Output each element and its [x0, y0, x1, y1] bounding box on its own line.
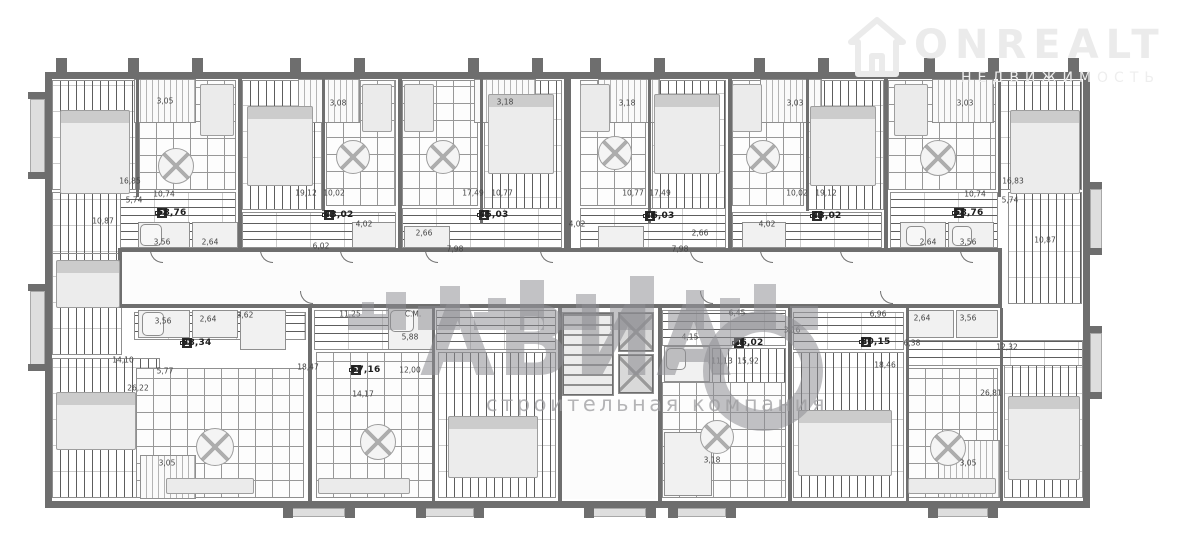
table-furniture — [360, 424, 396, 460]
wall — [28, 92, 45, 99]
wall — [290, 58, 301, 74]
dimension-label: 6,02 — [313, 242, 330, 251]
dimension-label: 2,64 — [920, 238, 937, 247]
dimension-label: 10,74 — [153, 190, 174, 199]
apartment-area: 43,02 — [812, 211, 841, 221]
wall — [646, 506, 656, 518]
wall — [988, 506, 998, 518]
dimension-label: 5,74 — [1002, 196, 1019, 205]
counter-furniture — [318, 478, 410, 494]
dimension-label: 26,81 — [980, 389, 1001, 398]
table-furniture — [746, 140, 780, 174]
dimension-label: 10,77 — [491, 189, 512, 198]
wall — [474, 506, 484, 518]
wall — [56, 58, 67, 74]
apartment-badge: 143,02 — [810, 214, 816, 218]
onrealt-tagline-text: НЕДВИЖИМОСТЬ — [961, 70, 1160, 86]
onrealt-brand-text: ONREALT — [914, 22, 1166, 68]
wall — [788, 308, 792, 501]
room-slab — [418, 508, 474, 517]
counter-furniture — [166, 478, 254, 494]
wall — [28, 172, 45, 179]
dimension-label: 14,17 — [352, 390, 373, 399]
dimension-label: 3,56 — [154, 238, 171, 247]
dimension-label: 10,74 — [964, 190, 985, 199]
dimension-label: 2,66 — [416, 229, 433, 238]
table-furniture — [158, 148, 194, 184]
wall — [432, 308, 435, 501]
counter-furniture — [908, 478, 996, 494]
wall — [398, 79, 402, 249]
dimension-label: 19,12 — [295, 189, 316, 198]
dimension-label: 3,56 — [960, 314, 977, 323]
dimension-label: 16,85 — [119, 177, 140, 186]
room-slab — [30, 291, 45, 365]
wall — [354, 58, 365, 74]
dimension-label: 10,02 — [786, 189, 807, 198]
wall — [28, 364, 45, 371]
dimension-label: 16,83 — [1002, 177, 1023, 186]
dimension-label: 10,77 — [622, 189, 643, 198]
table-furniture — [336, 140, 370, 174]
wall — [1090, 248, 1102, 255]
room-slab — [930, 508, 988, 517]
apartment-area: 58,76 — [157, 208, 186, 218]
room-slab — [1090, 189, 1102, 249]
apartment-badge: 288,34 — [180, 341, 186, 345]
dimension-label: 3,56 — [155, 317, 172, 326]
bed-furniture — [56, 392, 136, 450]
dimension-label: 4,02 — [569, 220, 586, 229]
dimension-label: 3,18 — [704, 456, 721, 465]
table-furniture — [700, 420, 734, 454]
wall — [532, 58, 543, 74]
wall — [468, 58, 479, 74]
apartment-area: 58,76 — [954, 208, 983, 218]
dimension-label: 3,18 — [619, 99, 636, 108]
dimension-label: 14,10 — [112, 356, 133, 365]
bed-furniture — [448, 416, 538, 478]
dimension-label: 5,77 — [157, 367, 174, 376]
wall — [308, 308, 312, 501]
dimension-label: 11,13 — [711, 357, 732, 366]
wall — [118, 248, 1002, 252]
dimension-label: 15,92 — [737, 357, 758, 366]
apartment-area: 80,15 — [861, 337, 890, 347]
bed-furniture — [654, 94, 720, 174]
wall — [754, 58, 765, 74]
table-furniture — [426, 140, 460, 174]
wall — [45, 72, 52, 508]
wall — [1090, 326, 1102, 333]
room-stair — [562, 312, 614, 396]
floorplan-canvas: ONREALT НЕДВИЖИМОСТЬ 3,0516,8510,745,741… — [0, 0, 1200, 558]
counter-furniture — [362, 84, 392, 132]
wall — [584, 506, 594, 518]
dimension-label: 2,66 — [692, 229, 709, 238]
room-plain — [120, 252, 1000, 304]
wall — [238, 79, 242, 249]
apartment-area: 67,16 — [351, 365, 380, 375]
dimension-label: 6,38 — [904, 339, 921, 348]
wall — [906, 308, 909, 501]
apartment-area: 45,03 — [479, 210, 508, 220]
wall — [590, 58, 601, 74]
room-h-horiz — [662, 310, 786, 346]
apartment-badge: 267,16 — [349, 368, 355, 372]
dimension-label: 2,64 — [914, 314, 931, 323]
wall — [192, 58, 203, 74]
house-icon — [848, 16, 906, 78]
wall — [28, 284, 45, 291]
table-furniture — [196, 428, 234, 466]
dimension-label: 7,98 — [672, 245, 689, 254]
bed-furniture — [1008, 396, 1080, 480]
dimension-label: 12,32 — [996, 343, 1017, 352]
dimension-label: 12,00 — [399, 366, 420, 375]
room-h-vert — [1008, 192, 1082, 304]
room-elev — [618, 312, 654, 352]
room-elev — [618, 354, 654, 394]
dimension-label: 3,56 — [960, 238, 977, 247]
dimension-label: 3,16 — [784, 326, 801, 335]
apartment-badge: 258,76 — [952, 211, 958, 215]
dimension-label: 3,62 — [237, 311, 254, 320]
apartment-badge: 145,03 — [477, 213, 483, 217]
dimension-label: 19,12 — [815, 189, 836, 198]
apartment-badge: 146,02 — [732, 341, 738, 345]
room-slab — [670, 508, 726, 517]
wall — [668, 506, 678, 518]
room-plain — [560, 400, 656, 499]
bed-furniture — [810, 106, 876, 186]
apartment-area: 46,03 — [645, 211, 674, 221]
wall — [283, 506, 293, 518]
room-slab — [30, 99, 45, 173]
wall — [558, 308, 562, 501]
dimension-label: 4,02 — [759, 220, 776, 229]
dimension-label: 3,08 — [330, 99, 347, 108]
dimension-label: 10,87 — [92, 217, 113, 226]
dimension-label: 3,05 — [159, 459, 176, 468]
room-slab — [285, 508, 345, 517]
wall — [998, 252, 1002, 304]
counter-furniture — [894, 84, 928, 136]
bed-furniture — [56, 260, 120, 308]
dimension-label: 4,15 — [682, 333, 699, 342]
dimension-label: 6,45 — [729, 309, 746, 318]
dimension-label: 7,98 — [447, 245, 464, 254]
dimension-label: 3,18 — [497, 98, 514, 107]
apartment-area: 46,02 — [734, 338, 763, 348]
tub-furniture — [666, 348, 686, 370]
dimension-label: 3,03 — [787, 99, 804, 108]
room-slab — [586, 508, 646, 517]
dimension-label: 2,64 — [202, 238, 219, 247]
wall — [1090, 182, 1102, 189]
dimension-label: 5,88 — [402, 333, 419, 342]
dimension-label: 6,96 — [870, 310, 887, 319]
dimension-label: 4,02 — [356, 220, 373, 229]
room-slab — [1090, 333, 1102, 393]
dimension-label: 10,87 — [1034, 236, 1055, 245]
dimension-label: 18,47 — [297, 363, 318, 372]
wall — [998, 79, 1001, 197]
wall — [654, 58, 665, 74]
apartment-badge: 143,02 — [322, 213, 328, 217]
wall — [1000, 308, 1003, 501]
apartment-badge: 258,76 — [155, 211, 161, 215]
dimension-label: 3,03 — [957, 99, 974, 108]
dimension-label: 11,25 — [339, 310, 360, 319]
wall — [726, 506, 736, 518]
counter-furniture — [580, 84, 610, 132]
dimension-label: 26,22 — [127, 384, 148, 393]
dimension-label: 3,05 — [960, 459, 977, 468]
dimension-label: 17,49 — [462, 189, 483, 198]
wall — [648, 79, 651, 224]
wall — [416, 506, 426, 518]
apartment-area: 88,34 — [182, 338, 211, 348]
table-furniture — [920, 140, 956, 176]
wall — [928, 506, 938, 518]
dimension-label: 3,05 — [157, 97, 174, 106]
dimension-label: 18,46 — [874, 361, 895, 370]
dimension-label: 5,74 — [126, 196, 143, 205]
apartment-badge: 380,15 — [859, 340, 865, 344]
apartment-badge: 146,03 — [643, 214, 649, 218]
wall — [480, 79, 483, 224]
counter-furniture — [404, 84, 434, 132]
bed-furniture — [798, 410, 892, 476]
dimension-label: 17,49 — [649, 189, 670, 198]
wall — [1090, 392, 1102, 399]
wall — [128, 58, 139, 74]
room-bath — [598, 226, 644, 248]
table-furniture — [598, 136, 632, 170]
dimension-label: 10,02 — [323, 189, 344, 198]
counter-furniture — [732, 84, 762, 132]
wall — [884, 79, 888, 249]
counter-furniture — [200, 84, 234, 136]
wall — [345, 506, 355, 518]
apartment-area: 43,02 — [324, 210, 353, 220]
room-h-horiz — [436, 310, 556, 350]
dimension-label: С.М. — [405, 310, 421, 319]
wall — [658, 308, 662, 501]
bed-furniture — [247, 106, 313, 186]
wall — [818, 58, 829, 74]
onrealt-logo: ONREALT НЕДВИЖИМОСТЬ — [848, 10, 1178, 90]
wall — [1083, 72, 1090, 508]
dimension-label: 2,64 — [200, 315, 217, 324]
